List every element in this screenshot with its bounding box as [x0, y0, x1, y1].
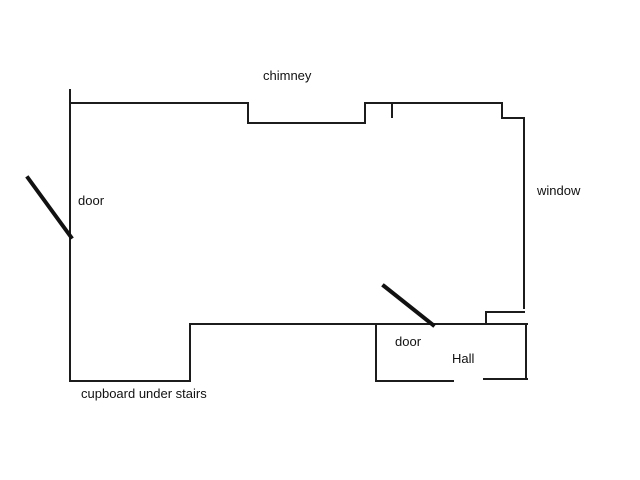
door-swing-left-line	[28, 178, 71, 237]
floorplan-canvas: chimney door window door Hall cupboard u…	[0, 0, 640, 480]
label-door-left: door	[78, 194, 104, 208]
door-swing-hall-line	[384, 286, 433, 325]
label-door-hall: door	[395, 335, 421, 349]
label-cupboard-under-stairs: cupboard under stairs	[81, 387, 207, 401]
label-chimney: chimney	[263, 69, 311, 83]
floorplan-drawing	[0, 0, 640, 480]
label-window: window	[537, 184, 580, 198]
label-hall: Hall	[452, 352, 474, 366]
